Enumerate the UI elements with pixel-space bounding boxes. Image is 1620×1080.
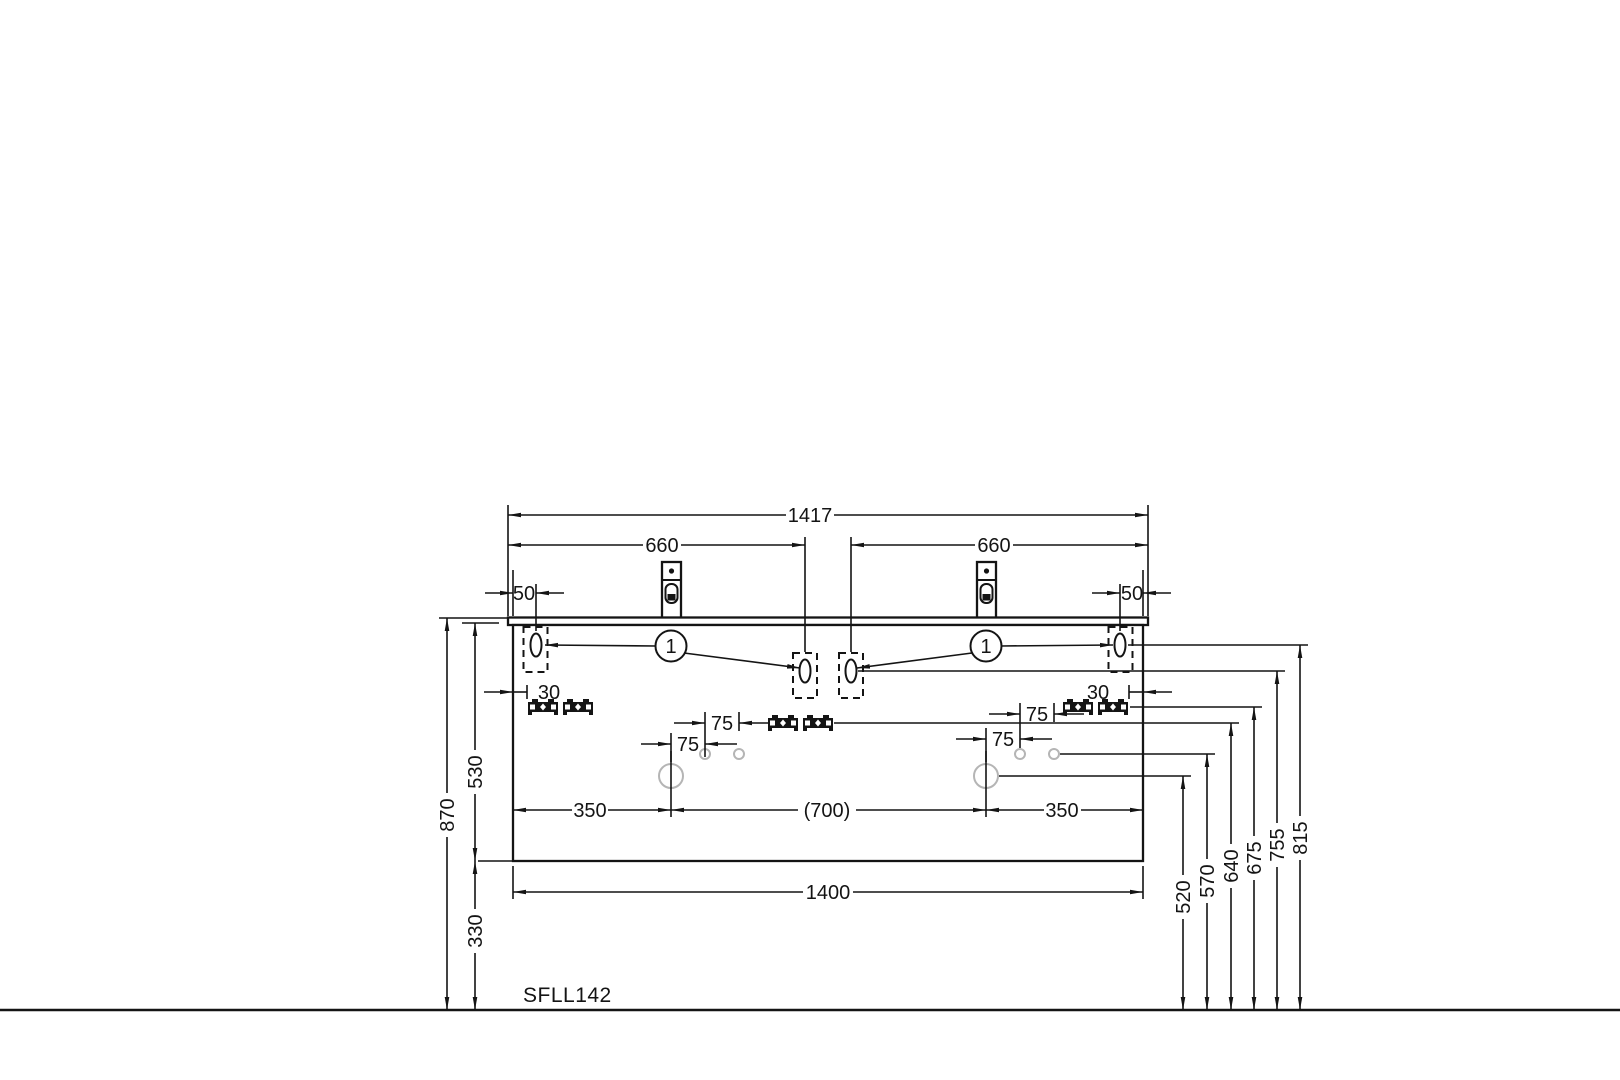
faucet-hole xyxy=(1049,749,1059,759)
dim-cabinet-width: 1400 xyxy=(513,866,1143,904)
dim-label: 50 xyxy=(513,583,535,605)
dim-label: 30 xyxy=(1087,682,1109,704)
dim-label: 30 xyxy=(538,682,560,704)
dim-label: 520 xyxy=(1173,880,1195,913)
wall-bracket-left xyxy=(662,562,681,618)
dim-label: 75 xyxy=(711,713,733,735)
cad-drawing-canvas: 1 1 1417 660 660 50 50 xyxy=(0,0,1620,1080)
dim-overall-height: 870 xyxy=(437,618,507,1010)
dim-label: 330 xyxy=(465,914,487,947)
dim-height-815: 815 xyxy=(1128,645,1312,1010)
dim-label: 660 xyxy=(977,535,1010,557)
dim-label: 570 xyxy=(1197,864,1219,897)
balloon-number: 1 xyxy=(980,636,991,658)
vanity-dimension-drawing: 1 1 1417 660 660 50 50 xyxy=(0,0,1620,1080)
wall-bracket-right xyxy=(977,562,996,618)
dim-label: 755 xyxy=(1267,828,1289,861)
balloon-number: 1 xyxy=(665,636,676,658)
dim-label: (700) xyxy=(804,800,851,822)
dim-label: 350 xyxy=(1045,800,1078,822)
dim-label: 50 xyxy=(1121,583,1143,605)
cabinet-body xyxy=(513,625,1143,861)
faucet-hole xyxy=(1015,749,1025,759)
bracket-screw-hole xyxy=(669,568,674,573)
dim-label: 75 xyxy=(992,729,1014,751)
dim-label: 675 xyxy=(1244,841,1266,874)
faucet-hole xyxy=(734,749,744,759)
dim-bottom-clearance: 330 xyxy=(465,861,487,1010)
dim-label: 870 xyxy=(437,798,459,831)
dim-height-675: 675 xyxy=(1130,707,1266,1010)
dim-label: 530 xyxy=(465,755,487,788)
dim-label: 1417 xyxy=(788,505,833,527)
model-number-label: SFLL142 xyxy=(523,984,612,1007)
dim-label: 660 xyxy=(645,535,678,557)
dim-label: 640 xyxy=(1221,849,1243,882)
dim-label: 75 xyxy=(677,734,699,756)
bracket-screw-hole xyxy=(984,568,989,573)
dim-label: 1400 xyxy=(806,882,851,904)
dim-label: 815 xyxy=(1290,821,1312,854)
dim-countertop-width: 1417 xyxy=(508,505,1148,616)
dim-cabinet-height: 530 xyxy=(462,623,513,861)
dim-label: 350 xyxy=(573,800,606,822)
